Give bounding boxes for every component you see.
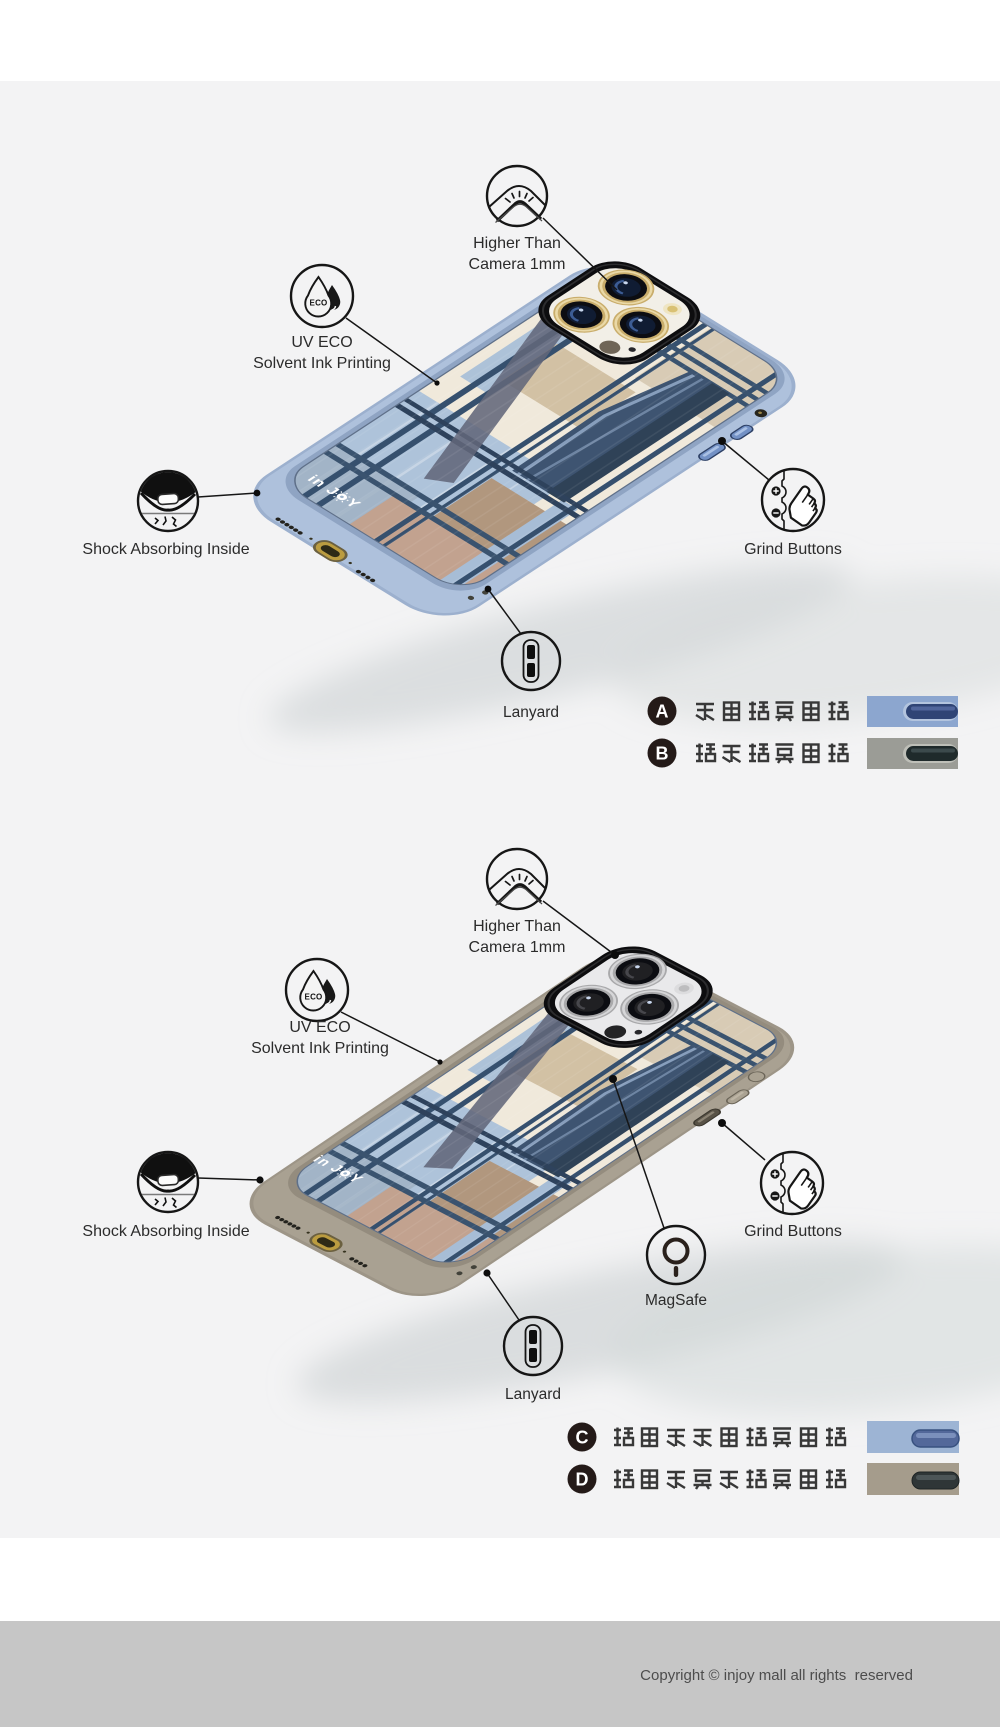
- svg-text:D: D: [576, 1470, 589, 1490]
- svg-text:Higher Than: Higher Than: [473, 235, 561, 252]
- svg-text:Camera 1mm: Camera 1mm: [469, 939, 566, 956]
- svg-text:Camera 1mm: Camera 1mm: [469, 256, 566, 273]
- svg-text:Lanyard: Lanyard: [505, 1386, 561, 1403]
- svg-text:Higher Than: Higher Than: [473, 918, 561, 935]
- svg-text:Lanyard: Lanyard: [503, 704, 559, 721]
- svg-text:B: B: [656, 744, 669, 764]
- svg-text:ECO: ECO: [310, 299, 328, 308]
- svg-text:Grind Buttons: Grind Buttons: [744, 1223, 842, 1240]
- svg-text:ECO: ECO: [305, 993, 323, 1002]
- svg-text:Grind Buttons: Grind Buttons: [744, 541, 842, 558]
- svg-text:Shock Absorbing Inside: Shock Absorbing Inside: [82, 1223, 249, 1240]
- svg-text:Solvent Ink Printing: Solvent Ink Printing: [253, 355, 391, 372]
- svg-text:MagSafe: MagSafe: [645, 1292, 707, 1309]
- svg-text:C: C: [576, 1428, 589, 1448]
- svg-text:Solvent Ink Printing: Solvent Ink Printing: [251, 1040, 389, 1057]
- svg-text:Copyright © injoy mall all rig: Copyright © injoy mall all rights reserv…: [640, 1667, 913, 1684]
- svg-text:Shock Absorbing Inside: Shock Absorbing Inside: [82, 541, 249, 558]
- svg-text:A: A: [656, 702, 669, 722]
- svg-text:UV ECO: UV ECO: [289, 1019, 350, 1036]
- svg-text:UV ECO: UV ECO: [291, 334, 352, 351]
